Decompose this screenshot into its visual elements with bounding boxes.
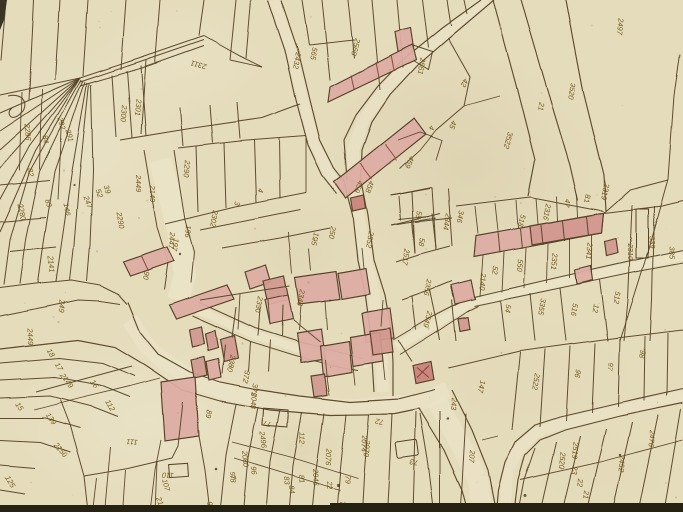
svg-text:2286: 2286 xyxy=(23,122,34,141)
svg-text:2141: 2141 xyxy=(46,254,57,272)
svg-text:21: 21 xyxy=(536,101,546,112)
svg-text:339: 339 xyxy=(647,236,656,250)
svg-text:2351: 2351 xyxy=(550,252,561,270)
svg-text:83: 83 xyxy=(282,476,292,486)
svg-text:2048: 2048 xyxy=(248,391,259,410)
svg-text:96: 96 xyxy=(249,466,259,476)
svg-text:81: 81 xyxy=(583,194,593,204)
svg-text:22: 22 xyxy=(575,477,585,488)
svg-text:2449: 2449 xyxy=(26,327,36,346)
svg-text:243: 243 xyxy=(449,397,459,412)
svg-text:23: 23 xyxy=(569,465,579,476)
svg-text:2076: 2076 xyxy=(323,447,334,466)
svg-text:207: 207 xyxy=(467,449,477,464)
svg-text:2447: 2447 xyxy=(166,231,177,250)
svg-text:112: 112 xyxy=(298,432,307,445)
svg-text:21: 21 xyxy=(581,489,591,499)
svg-text:84: 84 xyxy=(287,485,297,494)
svg-text:54: 54 xyxy=(503,304,513,314)
svg-text:2452: 2452 xyxy=(616,454,627,473)
svg-text:2310: 2310 xyxy=(626,243,635,262)
svg-text:550: 550 xyxy=(515,259,525,273)
svg-text:2301: 2301 xyxy=(133,98,144,116)
svg-text:78: 78 xyxy=(228,474,238,484)
svg-text:2520: 2520 xyxy=(556,451,567,470)
svg-text:2149: 2149 xyxy=(148,184,157,203)
svg-text:79: 79 xyxy=(343,475,352,484)
svg-text:2074: 2074 xyxy=(359,434,369,452)
svg-text:249: 249 xyxy=(57,299,67,314)
svg-text:22: 22 xyxy=(325,480,334,490)
svg-text:2496: 2496 xyxy=(258,430,269,449)
svg-text:2497: 2497 xyxy=(615,17,626,36)
svg-text:2449: 2449 xyxy=(134,174,143,193)
svg-text:111: 111 xyxy=(126,437,138,447)
svg-text:2290: 2290 xyxy=(181,159,192,178)
svg-text:385: 385 xyxy=(667,246,676,259)
svg-text:2341: 2341 xyxy=(585,242,596,260)
svg-text:52: 52 xyxy=(490,266,500,276)
svg-text:2519: 2519 xyxy=(569,441,580,460)
svg-text:2476: 2476 xyxy=(646,429,657,448)
svg-text:2080: 2080 xyxy=(240,449,251,468)
svg-text:196: 196 xyxy=(183,225,193,239)
svg-text:84: 84 xyxy=(41,134,51,144)
svg-text:81: 81 xyxy=(297,474,307,483)
svg-text:2046: 2046 xyxy=(311,468,321,487)
svg-text:2140: 2140 xyxy=(477,272,488,291)
svg-text:2300: 2300 xyxy=(118,104,129,123)
